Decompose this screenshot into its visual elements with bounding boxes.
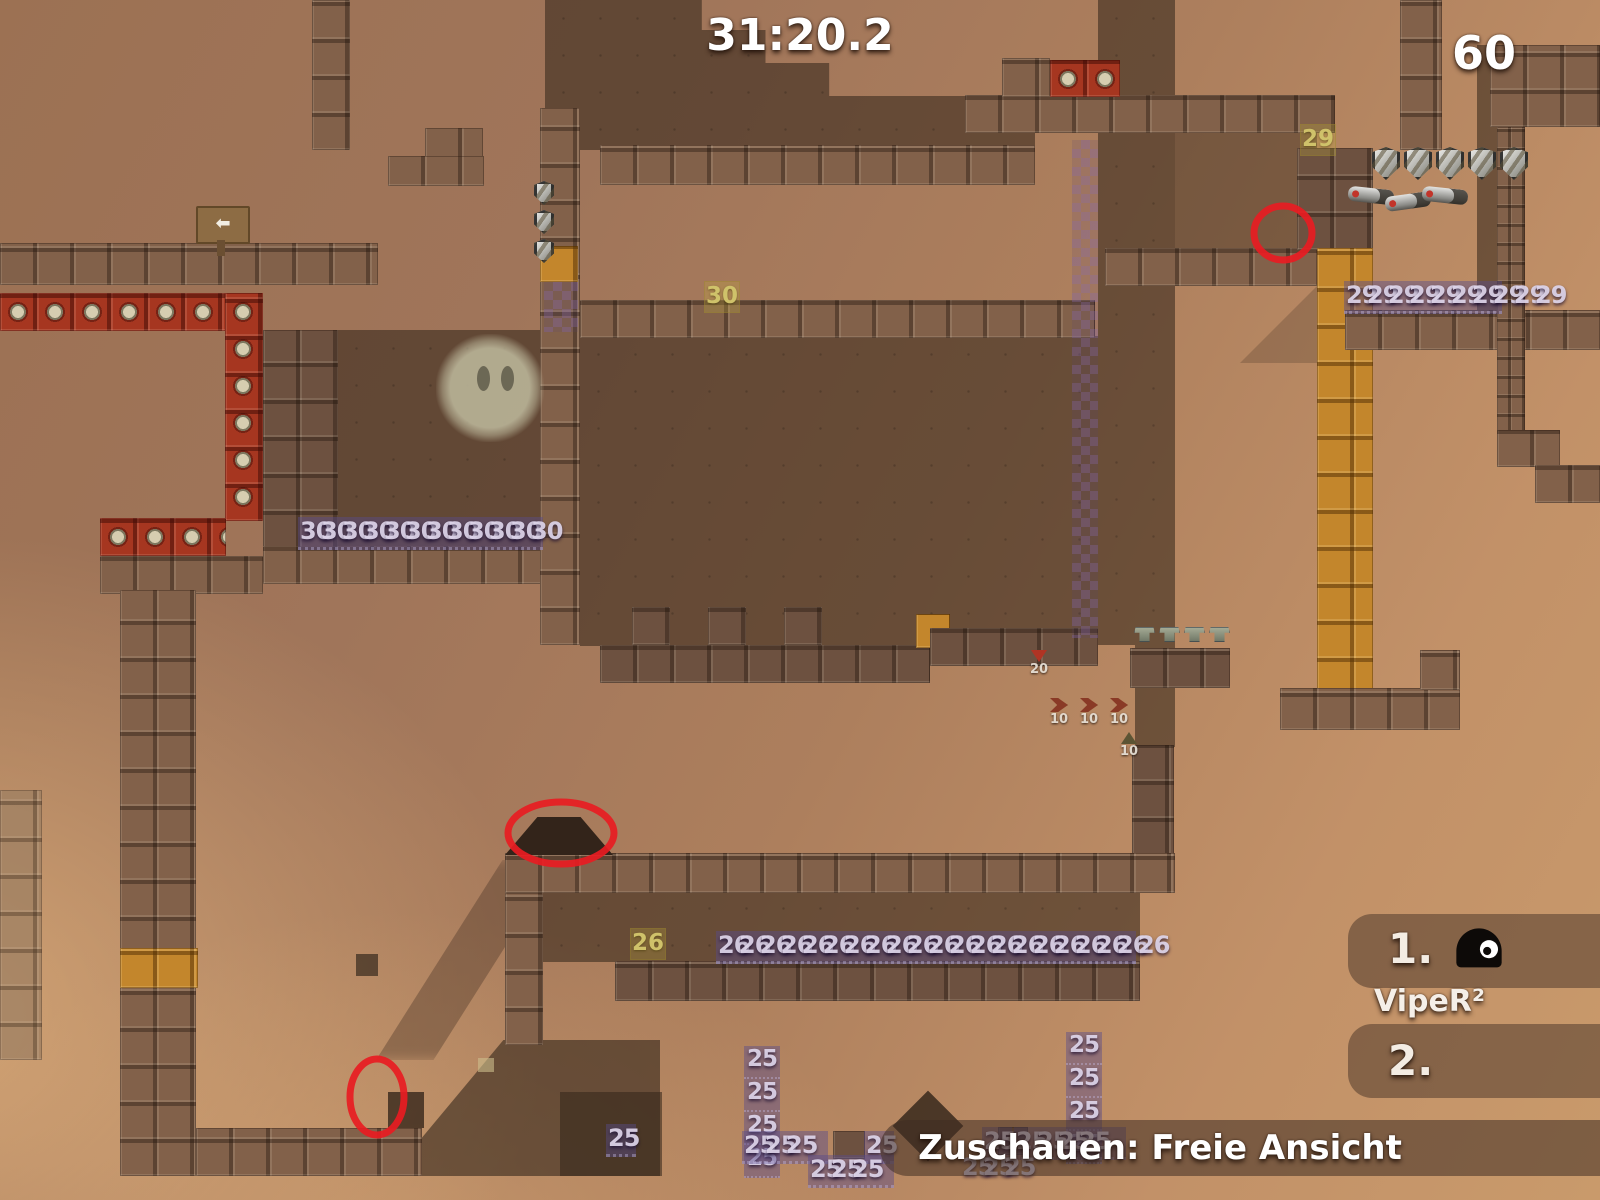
booster-arrow: 10 [1046, 698, 1072, 726]
rank1-player-name: VipeR² [1374, 984, 1485, 1019]
freeze-timer-strip: 252525 [744, 1133, 807, 1157]
kill-counter: 60 [1452, 26, 1572, 80]
spectator-bar: Zuschauen: Freie Ansicht [880, 1120, 1600, 1176]
tile-number-label: 30 [704, 281, 740, 313]
armor-pickup-icon [534, 181, 554, 205]
scoreboard-rank1-panel: 1. [1348, 914, 1600, 988]
armor-pickup-icon [1468, 147, 1496, 180]
booster-arrow: 20 [1026, 650, 1052, 676]
rank1-label: 1. [1388, 924, 1433, 973]
freeze-timer-strip: 25 [608, 1126, 629, 1150]
right-arrow-icon [1050, 698, 1068, 712]
booster-arrow: 10 [1116, 732, 1142, 758]
tee-avatar-icon [1450, 922, 1508, 980]
armor-pickup-icon [1436, 147, 1464, 180]
booster-arrow: 10 [1106, 698, 1132, 726]
tile-number-label: 29 [1300, 124, 1336, 156]
game-timer: 31:20.2 [0, 10, 1600, 61]
scoreboard-rank2-panel: 2. [1348, 1024, 1600, 1098]
armor-pickup-icon [1404, 147, 1432, 180]
up-arrow-icon [1121, 732, 1137, 744]
stopper-tile-icon [1159, 627, 1180, 642]
rank2-label: 2. [1388, 1036, 1433, 1085]
freeze-timer-strip: 252525 [810, 1157, 873, 1181]
stopper-tile-icon [1209, 627, 1230, 642]
armor-pickup-icon [534, 239, 554, 263]
down-arrow-icon [1031, 650, 1047, 662]
stopper-tile-icon [1184, 627, 1205, 642]
stopper-tile-icon [1134, 627, 1155, 642]
game-viewport[interactable]: ⬅ 30303030303030303030303029292929292929… [0, 0, 1600, 1200]
freeze-timer-strip: 2626262626262626262626262626262626262626… [718, 933, 1159, 957]
freeze-timer-strip: 29292929292929292929 [1346, 283, 1556, 307]
armor-pickup-icon [534, 210, 554, 234]
entities-layer: 3030303030303030303030302929292929292929… [0, 0, 1600, 1200]
booster-arrow: 10 [1076, 698, 1102, 726]
armor-pickup-icon [1500, 147, 1528, 180]
spectator-mode-label: Zuschauen: Freie Ansicht [880, 1128, 1440, 1168]
armor-pickup-icon [1372, 147, 1400, 180]
tile-number-label: 26 [630, 928, 666, 960]
right-arrow-icon [1110, 698, 1128, 712]
freeze-timer-strip: 303030303030303030303030 [300, 519, 552, 543]
right-arrow-icon [1080, 698, 1098, 712]
